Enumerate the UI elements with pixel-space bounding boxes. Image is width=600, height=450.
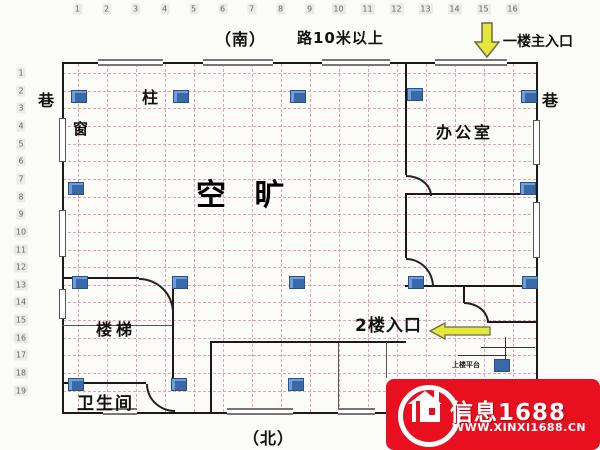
grid-row-number: 15 xyxy=(14,315,28,326)
floor-plan-page: （南） 路10米以上 一楼主入口 12345678910111213141516… xyxy=(0,0,600,450)
grid-line-v xyxy=(165,64,166,412)
column-marker xyxy=(407,88,423,101)
column-marker xyxy=(72,276,88,289)
window-marker xyxy=(59,118,66,162)
door-swing-arc xyxy=(464,302,489,323)
grid-line-v xyxy=(252,64,253,412)
grid-col-number: 3 xyxy=(131,4,140,15)
grid-line-h xyxy=(63,108,536,109)
column-marker xyxy=(71,90,87,103)
grid-col-number: 14 xyxy=(447,4,461,15)
alley-left-label: 巷 xyxy=(38,87,54,111)
watermark-site: WWW.XINXI1688.CN xyxy=(452,421,586,434)
column-marker xyxy=(289,276,305,289)
door-swing-arc xyxy=(146,384,175,412)
window-marker xyxy=(533,202,540,258)
grid-line-v xyxy=(368,64,369,412)
grid-line-h xyxy=(63,214,536,215)
grid-line-h xyxy=(63,144,536,145)
door-swing-arc xyxy=(139,278,174,313)
wall-segment xyxy=(172,277,174,383)
partition-line xyxy=(386,342,387,378)
column-marker xyxy=(521,90,537,103)
toilet-label: 卫生间 xyxy=(77,389,134,414)
column-label: 柱 xyxy=(142,84,158,108)
main-entrance-arrow-icon xyxy=(474,22,500,58)
south-label: （南） xyxy=(215,26,266,50)
window-marker xyxy=(59,210,66,257)
grid-line-h xyxy=(63,161,536,162)
grid-line-v xyxy=(310,64,311,412)
grid-line-v xyxy=(78,64,79,412)
column-marker xyxy=(173,90,189,103)
grid-col-number: 6 xyxy=(218,4,227,15)
grid-row-number: 12 xyxy=(14,262,28,273)
partition-line xyxy=(338,343,339,409)
grid-row-number: 13 xyxy=(14,279,28,290)
grid-col-number: 12 xyxy=(389,4,403,15)
grid-row-number: 7 xyxy=(16,173,25,184)
exterior-stair-icon xyxy=(505,337,506,360)
wall-segment xyxy=(463,285,465,303)
exterior-stair-icon xyxy=(458,355,507,356)
grid-row-number: 18 xyxy=(14,368,28,379)
grid-row-number: 17 xyxy=(14,350,28,361)
grid-col-number: 1 xyxy=(73,4,82,15)
wall-segment xyxy=(405,63,407,175)
wall-opening xyxy=(322,59,390,66)
grid-col-number: 11 xyxy=(360,4,374,15)
wall-opening xyxy=(435,59,507,66)
alley-right-label: 巷 xyxy=(542,87,558,111)
wall-opening xyxy=(227,408,293,415)
grid-col-number: 9 xyxy=(305,4,314,15)
grid-line-h xyxy=(63,179,536,180)
door-swing-arc xyxy=(406,258,434,287)
grid-line-v xyxy=(107,64,108,412)
grid-row-number: 14 xyxy=(14,297,28,308)
column-marker xyxy=(520,182,536,195)
grid-col-number: 4 xyxy=(160,4,169,15)
grid-col-number: 5 xyxy=(189,4,198,15)
grid-line-h xyxy=(63,73,536,74)
grid-line-v xyxy=(194,64,195,412)
platform-note: 上楼平台 xyxy=(452,360,480,370)
grid-row-number: 6 xyxy=(16,156,25,167)
wall-segment xyxy=(487,321,536,323)
column-marker xyxy=(290,90,306,103)
grid-line-v xyxy=(513,64,514,412)
grid-row-number: 19 xyxy=(14,385,28,396)
window-marker xyxy=(533,120,540,165)
watermark-logo: 信息1688 WWW.XINXI1688.CN xyxy=(386,379,600,450)
grid-row-number: 3 xyxy=(16,103,25,114)
wall-opening xyxy=(98,59,163,66)
wall-opening xyxy=(203,59,273,66)
grid-col-number: 2 xyxy=(102,4,111,15)
grid-row-number: 8 xyxy=(16,191,25,202)
wall-segment xyxy=(210,341,406,343)
grid-row-number: 11 xyxy=(14,244,28,255)
window-marker xyxy=(59,289,66,319)
second-floor-entrance-label: 2楼入口 xyxy=(355,311,422,336)
grid-col-number: 13 xyxy=(418,4,432,15)
grid-line-v xyxy=(281,64,282,412)
grid-line-v xyxy=(484,64,485,412)
open-space-label: 空 旷 xyxy=(196,170,286,214)
main-entrance-label: 一楼主入口 xyxy=(503,31,573,51)
grid-line-v xyxy=(397,64,398,412)
grid-line-h xyxy=(63,250,536,251)
wall-segment xyxy=(405,193,407,258)
column-marker xyxy=(172,276,188,289)
grid-line-v xyxy=(136,64,137,412)
column-marker xyxy=(522,276,538,289)
grid-col-number: 15 xyxy=(476,4,490,15)
grid-row-number: 10 xyxy=(14,226,28,237)
grid-line-h xyxy=(63,373,536,374)
second-floor-arrow-icon xyxy=(429,322,491,340)
grid-line-h xyxy=(63,267,536,268)
column-marker xyxy=(288,378,304,391)
grid-col-number: 10 xyxy=(331,4,345,15)
grid-row-number: 1 xyxy=(16,68,25,79)
wall-segment xyxy=(210,341,212,412)
grid-row-number: 9 xyxy=(16,209,25,220)
road-width-label: 路10米以上 xyxy=(297,27,384,48)
wall-opening xyxy=(338,408,375,415)
exterior-stair-icon xyxy=(481,347,535,348)
column-marker xyxy=(494,359,510,372)
grid-col-number: 16 xyxy=(505,4,519,15)
grid-row-number: 16 xyxy=(14,332,28,343)
grid-row-number: 5 xyxy=(16,138,25,149)
grid-col-number: 8 xyxy=(276,4,285,15)
column-marker xyxy=(68,182,84,195)
stairs-label: 楼梯 xyxy=(96,316,136,340)
grid-row-number: 4 xyxy=(16,120,25,131)
grid-line-v xyxy=(223,64,224,412)
window-label: 窗 xyxy=(73,118,88,139)
office-label: 办公室 xyxy=(436,119,493,143)
grid-line-h xyxy=(63,197,536,198)
grid-line-v xyxy=(426,64,427,412)
north-label: （北） xyxy=(243,425,294,449)
grid-line-h xyxy=(63,232,536,233)
grid-row-number: 2 xyxy=(16,85,25,96)
grid-col-number: 7 xyxy=(247,4,256,15)
